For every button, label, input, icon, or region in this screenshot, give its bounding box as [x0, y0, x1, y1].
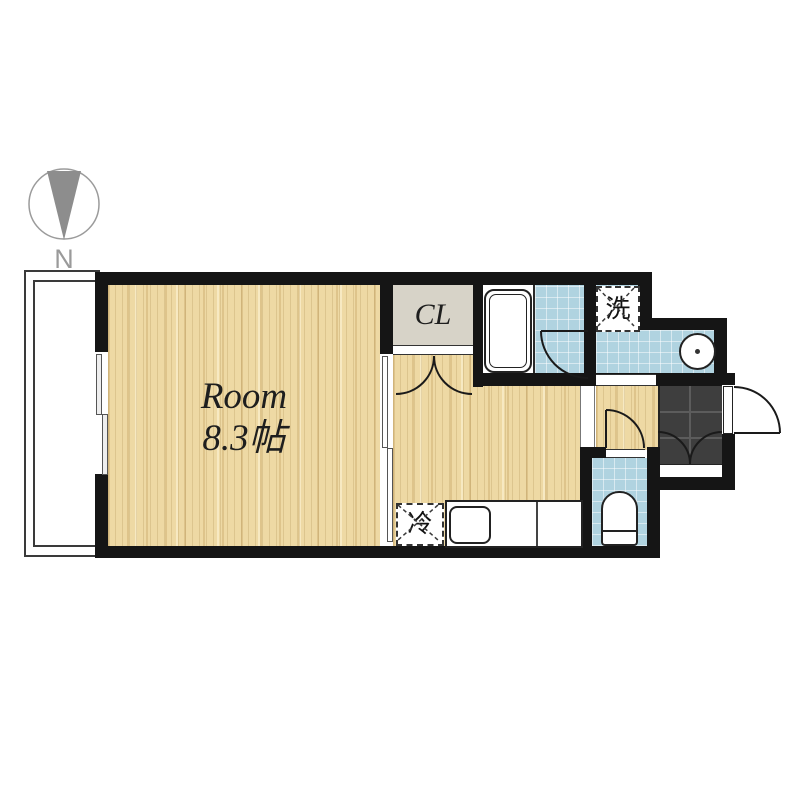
balcony-inner — [33, 280, 100, 547]
closet-door-track — [393, 345, 473, 355]
sliding-door-panel — [387, 448, 393, 542]
washing-machine-label: 洗 — [604, 297, 631, 322]
kitchen-sink — [449, 506, 491, 544]
wall-segment — [638, 318, 727, 330]
hallway-floor — [596, 386, 658, 450]
wall-segment — [584, 285, 596, 375]
washbasin-drain — [695, 349, 700, 354]
wall-segment — [473, 272, 483, 387]
window-panel — [96, 354, 102, 415]
main-room-size: 8.3帖 — [108, 418, 380, 460]
washroom-opening — [596, 374, 656, 386]
bathroom-floor — [535, 285, 584, 375]
sliding-door-panel — [382, 356, 388, 448]
wall-segment — [580, 447, 606, 458]
closet-label: CL — [393, 298, 473, 332]
refrigerator-box: 冷 — [396, 503, 444, 546]
front-door-leaf — [723, 386, 733, 434]
washing-machine-box: 洗 — [596, 286, 640, 332]
kitchen-hall-opening — [580, 386, 595, 447]
tile-grid-line — [660, 437, 724, 439]
main-room-label: Room 8.3帖 — [108, 376, 380, 460]
wall-segment — [380, 272, 393, 354]
front-door-arc — [734, 387, 780, 433]
tile-grid-line — [689, 386, 691, 464]
toilet-doorway — [606, 449, 645, 458]
main-room-name: Room — [108, 376, 380, 418]
compass-circle — [29, 169, 99, 239]
refrigerator-label: 冷 — [406, 512, 433, 537]
wall-segment — [95, 272, 651, 285]
compass: N — [29, 169, 99, 274]
toilet — [601, 491, 638, 546]
tile-grid-line — [660, 411, 724, 413]
entrance-floor — [658, 386, 724, 464]
bathtub — [484, 289, 532, 373]
floorplan: 洗 冷 Room 8.3帖 CL — [0, 0, 800, 800]
counter-divider — [536, 502, 538, 546]
wall-segment — [647, 447, 660, 558]
compass-needle — [47, 171, 81, 240]
wall-segment — [722, 434, 735, 490]
washbasin — [679, 333, 716, 370]
